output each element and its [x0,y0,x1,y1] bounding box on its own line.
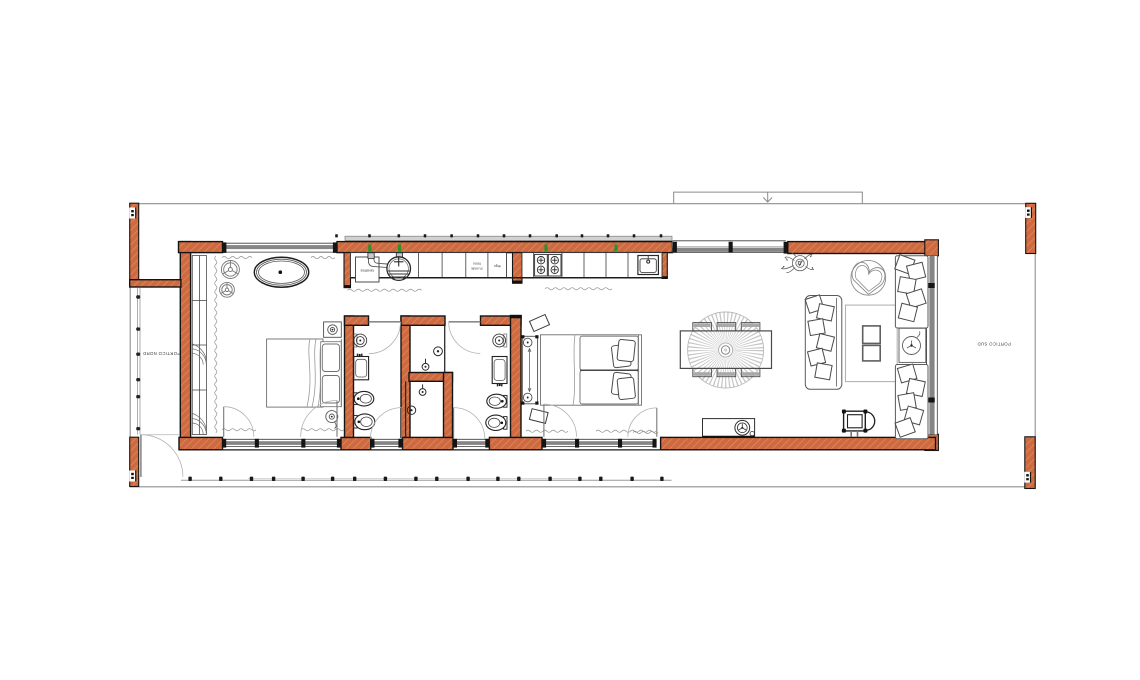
svg-text:frigo: frigo [494,264,501,268]
svg-text:PORTICO SUD: PORTICO SUD [977,341,1011,346]
svg-text:lavatrice: lavatrice [360,269,373,273]
svg-text:m.onde: m.onde [471,267,482,271]
svg-text:forno: forno [473,262,481,266]
svg-text:PORTICO NORD: PORTICO NORD [143,351,181,356]
